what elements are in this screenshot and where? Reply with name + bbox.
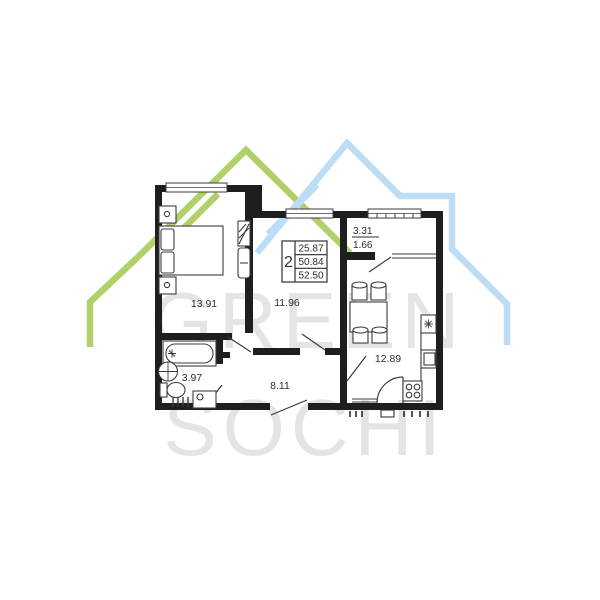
nightstand-top [159,206,176,223]
bathroom-area-label: 3.97 [182,372,203,384]
chair [372,327,387,343]
pillow [161,229,174,250]
wall-bottom-right [308,403,443,410]
hallway-area-label: 8.11 [270,380,290,392]
bedroom-window [166,183,227,192]
wall-bathroom-jamb [223,352,230,358]
chair [353,327,368,343]
nightstand-bottom [159,277,176,294]
balcony-area-total: 3.31 [353,226,373,237]
bedroom-area-label: 13.91 [191,298,217,310]
vent-shaft [381,410,394,417]
toilet [160,383,185,398]
kitchen-area-label: 12.89 [375,353,401,365]
living-window [286,209,333,218]
balcony-glazing [368,209,421,218]
wall-bathroom-right [216,340,223,364]
living-area-label: 11.96 [274,297,300,309]
floor-plan: GREEN SOCHI [0,0,600,600]
dresser [238,248,250,278]
wall-kitchen-hall [340,355,347,403]
fridge [421,315,436,333]
wall-balcony-partition [347,252,375,260]
wardrobe [238,221,250,246]
balcony-area-reduced: 1.66 [353,240,373,251]
bed [159,226,223,275]
wall-living-hall-left [253,348,300,355]
stove [403,381,422,401]
washbasin [158,362,178,382]
living-area-value: 25.87 [298,244,323,255]
apartment-info-box: 2 25.87 50.84 52.50 [282,241,327,282]
wall-bathroom-top [162,333,232,340]
wall-living-kitchen [340,211,347,355]
floor-plan-page: GREEN SOCHI [0,0,600,600]
apartment-area-value: 50.84 [298,257,323,268]
pillow [161,252,174,273]
kitchen-sink [421,350,436,368]
chair [371,282,386,300]
snowflake-icon [424,320,433,329]
chair [352,282,367,300]
rooms-count: 2 [284,254,293,271]
washing-machine [193,391,216,408]
wall-right [436,211,443,410]
total-area-value: 52.50 [298,271,323,282]
